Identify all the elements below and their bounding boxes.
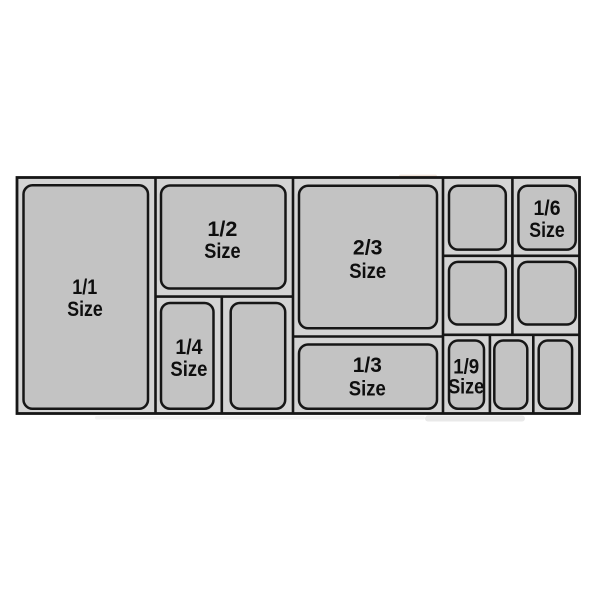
svg-text:1/2: 1/2	[207, 218, 237, 241]
svg-text:1/1: 1/1	[72, 276, 97, 299]
svg-text:Size: Size	[349, 260, 386, 283]
svg-text:Size: Size	[529, 219, 564, 242]
svg-text:1/6: 1/6	[534, 197, 561, 220]
svg-text:Size: Size	[448, 375, 484, 398]
svg-text:Size: Size	[67, 298, 103, 321]
svg-text:Size: Size	[349, 377, 386, 400]
svg-text:1/3: 1/3	[353, 354, 382, 377]
svg-text:Size: Size	[204, 240, 240, 263]
svg-text:1/4: 1/4	[175, 336, 202, 359]
svg-text:2/3: 2/3	[353, 236, 383, 259]
svg-text:Size: Size	[170, 358, 207, 381]
